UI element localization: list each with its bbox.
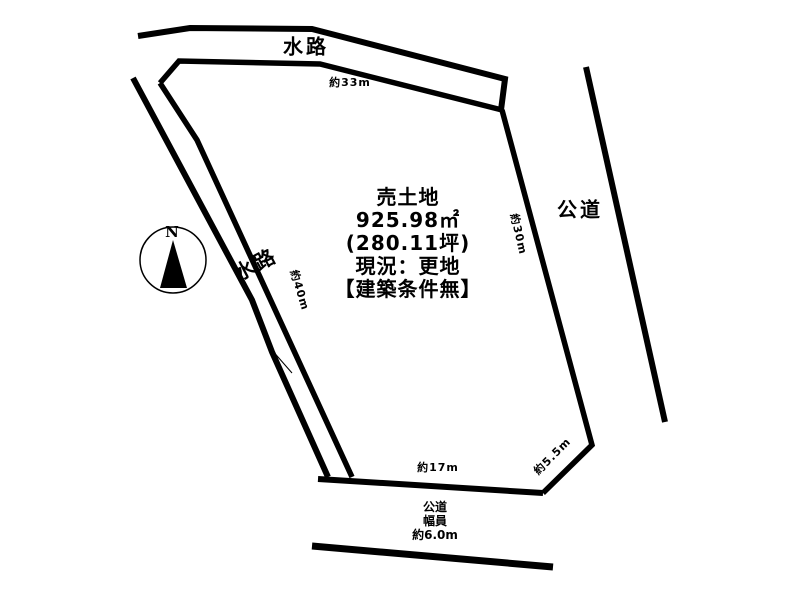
road-bottom-label-line2: 幅員 <box>412 514 458 528</box>
waterway-top-label: 水路 <box>283 31 329 60</box>
parcel-conditions: 【建築条件無】 <box>335 278 482 301</box>
dimension-bottom-edge: 約17m <box>417 459 459 475</box>
parcel-right-edge <box>502 110 592 493</box>
compass-north-needle-icon <box>160 240 187 288</box>
road-right-line <box>586 67 665 422</box>
parcel-title: 売土地 <box>335 186 482 209</box>
parcel-area-m2: 925.98㎡ <box>335 209 482 232</box>
parcel-left-edge <box>160 83 352 477</box>
road-bottom-label: 公道 幅員 約6.0m <box>412 500 458 542</box>
road-right-label: 公道 <box>557 194 603 223</box>
parcel-info-block: 売土地 925.98㎡ (280.11坪) 現況：更地 【建築条件無】 <box>335 186 482 301</box>
road-bottom-line <box>312 546 553 567</box>
parcel-area-tsubo: (280.11坪) <box>335 232 482 255</box>
parcel-bottom-edge <box>318 479 543 493</box>
compass-north-label: N <box>165 223 179 241</box>
dimension-top-edge: 約33m <box>329 74 371 90</box>
road-bottom-label-line1: 公道 <box>412 500 458 514</box>
land-plot-diagram: N 水路 約33m 水路 約40m 約30m 約5.5m 約17m 公道 公道 … <box>0 0 800 600</box>
road-bottom-label-line3: 約6.0m <box>412 528 458 542</box>
parcel-current-state: 現況：更地 <box>335 255 482 278</box>
